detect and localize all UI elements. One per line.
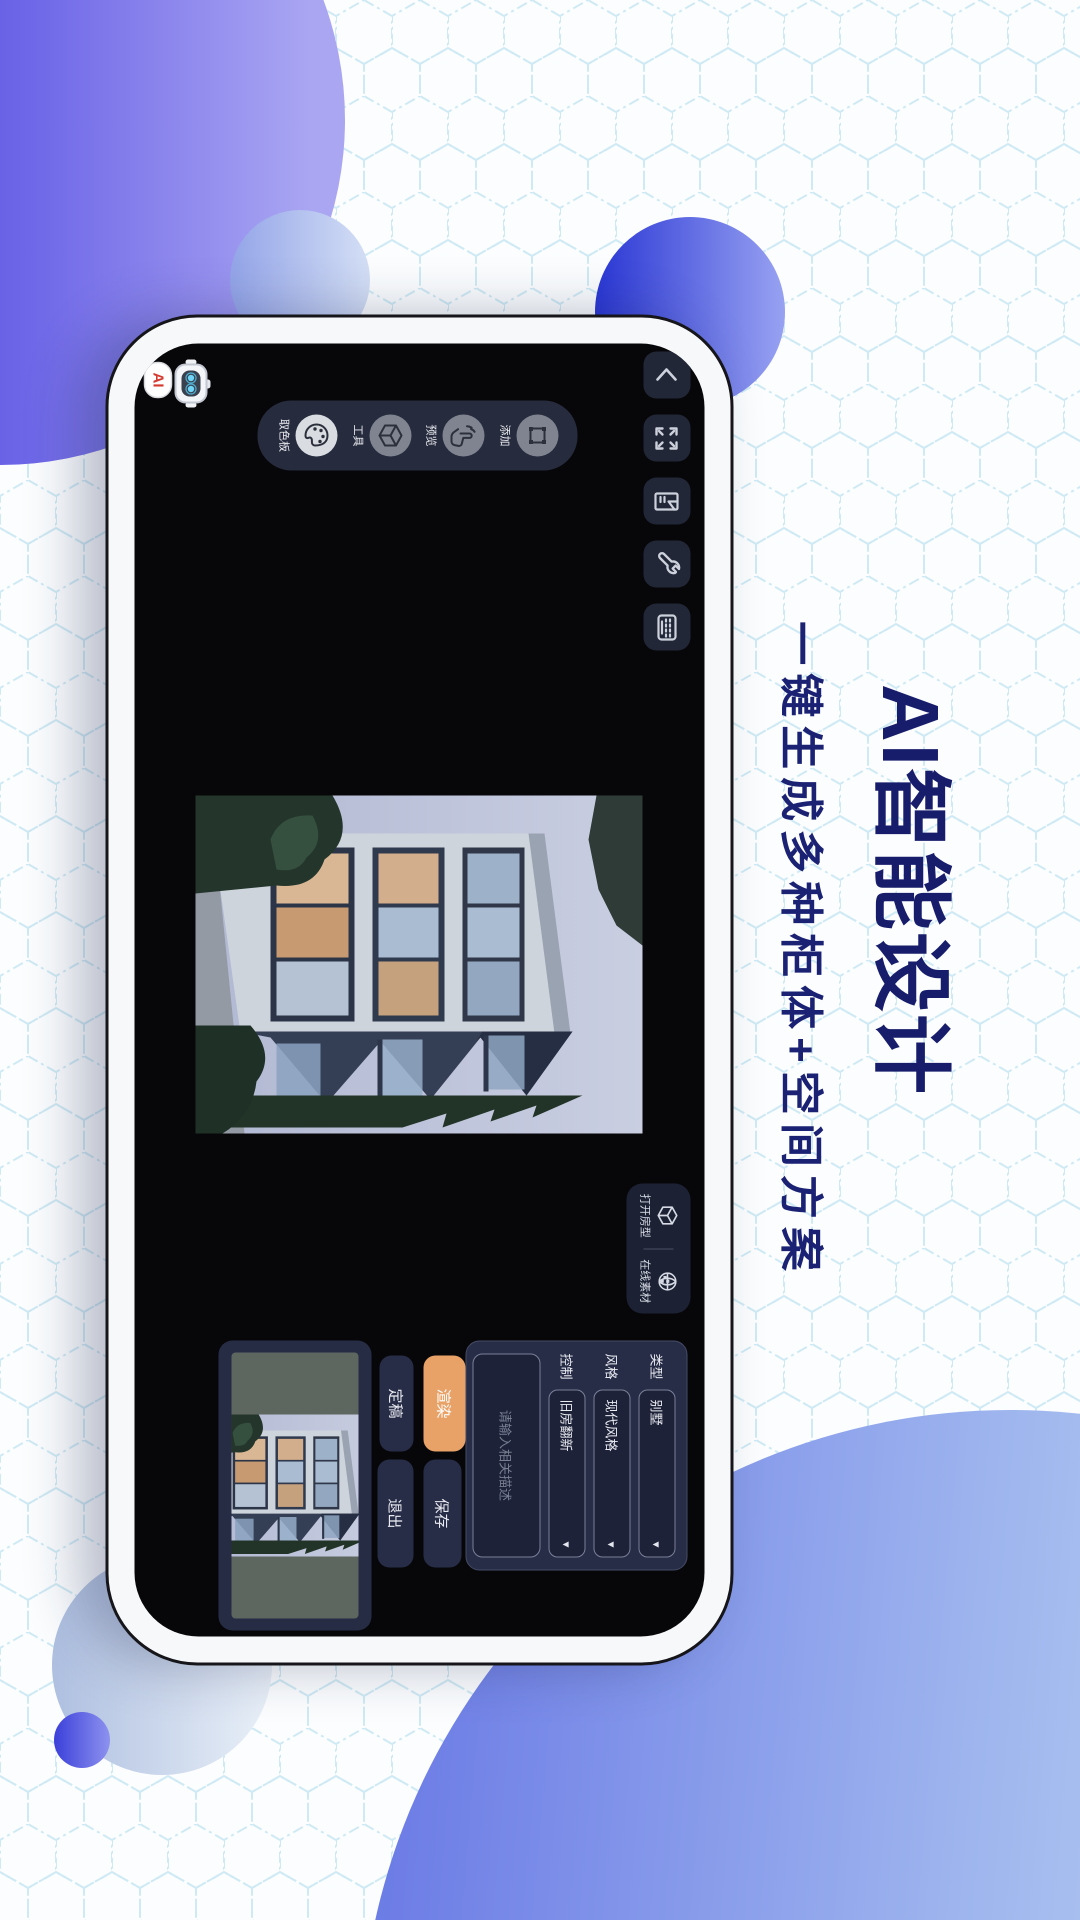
exit-button[interactable]: 退出 xyxy=(378,1460,414,1568)
svg-text:AI: AI xyxy=(150,373,167,388)
open-tools-pill: 打开房型 在线素材 xyxy=(627,1184,691,1314)
description-input[interactable]: 请输入相关描述 xyxy=(473,1354,541,1558)
cube-icon xyxy=(369,415,411,457)
open-floorplan-label: 打开房型 xyxy=(638,1194,654,1238)
panel-row-control: 控制 旧房翻新 ▾ xyxy=(549,1354,586,1558)
tool-add-label: 添加 xyxy=(498,425,514,447)
villa-render-image xyxy=(196,796,643,1134)
thumbnail-image xyxy=(232,1353,359,1619)
tool-tools[interactable]: 工具 xyxy=(350,415,411,457)
type-label: 类型 xyxy=(648,1354,667,1390)
chevron-down-icon: ▾ xyxy=(605,1541,619,1547)
chevron-down-icon: ▾ xyxy=(560,1541,574,1547)
tool-preview-label: 预览 xyxy=(424,425,440,447)
online-material-label: 在线素材 xyxy=(638,1259,654,1303)
online-material-button[interactable]: 在线素材 xyxy=(638,1253,680,1309)
tool-rail: 添加 预览 xyxy=(258,401,578,471)
tool-preview[interactable]: 预览 xyxy=(424,415,485,457)
pill-divider xyxy=(644,1248,674,1249)
hand-pointer-icon xyxy=(443,415,485,457)
type-dropdown[interactable]: 别墅 ▾ xyxy=(639,1390,676,1558)
fullscreen-button[interactable] xyxy=(644,415,691,462)
material-globe-icon xyxy=(656,1269,680,1293)
app-screen: 打开房型 在线素材 xyxy=(135,344,705,1637)
style-dropdown[interactable]: 现代风格 ▾ xyxy=(594,1390,631,1558)
ai-assistant[interactable]: AI xyxy=(143,358,211,410)
tool-add[interactable]: 添加 xyxy=(498,415,559,457)
collapse-chevron-icon xyxy=(644,352,690,398)
save-button[interactable]: 保存 xyxy=(424,1460,462,1568)
finalize-button[interactable]: 定稿 xyxy=(380,1356,414,1452)
floorplan-button[interactable] xyxy=(644,478,691,525)
control-value: 旧房翻新 xyxy=(558,1400,577,1452)
keyboard-button[interactable] xyxy=(644,604,691,651)
panel-row-type: 类型 别墅 ▾ xyxy=(639,1354,676,1558)
cube-icon xyxy=(656,1204,680,1228)
wrench-icon xyxy=(644,541,690,587)
render-button[interactable]: 渲染 xyxy=(424,1356,466,1452)
style-label: 风格 xyxy=(603,1354,622,1390)
control-dropdown[interactable]: 旧房翻新 ▾ xyxy=(549,1390,586,1558)
settings-panel: 类型 别墅 ▾ 风格 现代风格 ▾ 控制 旧房翻新 xyxy=(466,1341,688,1571)
promo-canvas: 打开房型 在线素材 xyxy=(0,0,1080,1920)
page-subtitle: 一键生成多种柜体+空间方案 xyxy=(774,560,826,1340)
render-thumbnail[interactable] xyxy=(219,1341,372,1631)
style-value: 现代风格 xyxy=(603,1400,622,1452)
floorplan-sheet-icon xyxy=(644,478,690,524)
tools-button[interactable] xyxy=(644,541,691,588)
description-placeholder: 请输入相关描述 xyxy=(497,1410,516,1501)
phone-mockup: 打开房型 在线素材 xyxy=(106,315,734,1666)
page-title: AI智能设计 xyxy=(865,630,955,1150)
decor-circle-dot xyxy=(54,1712,110,1768)
tool-color-picker-label: 取色板 xyxy=(276,419,292,452)
type-value: 别墅 xyxy=(648,1400,667,1426)
top-toolbar xyxy=(644,352,691,651)
palette-icon xyxy=(295,415,337,457)
marquee-icon xyxy=(517,415,559,457)
tool-tools-label: 工具 xyxy=(350,425,366,447)
keyboard-icon xyxy=(644,604,690,650)
panel-row-style: 风格 现代风格 ▾ xyxy=(594,1354,631,1558)
control-label: 控制 xyxy=(558,1354,577,1390)
collapse-button[interactable] xyxy=(644,352,691,399)
fullscreen-icon xyxy=(644,415,690,461)
tool-color-picker[interactable]: 取色板 xyxy=(276,415,337,457)
chevron-down-icon: ▾ xyxy=(650,1541,664,1547)
open-floorplan-button[interactable]: 打开房型 xyxy=(638,1188,680,1244)
